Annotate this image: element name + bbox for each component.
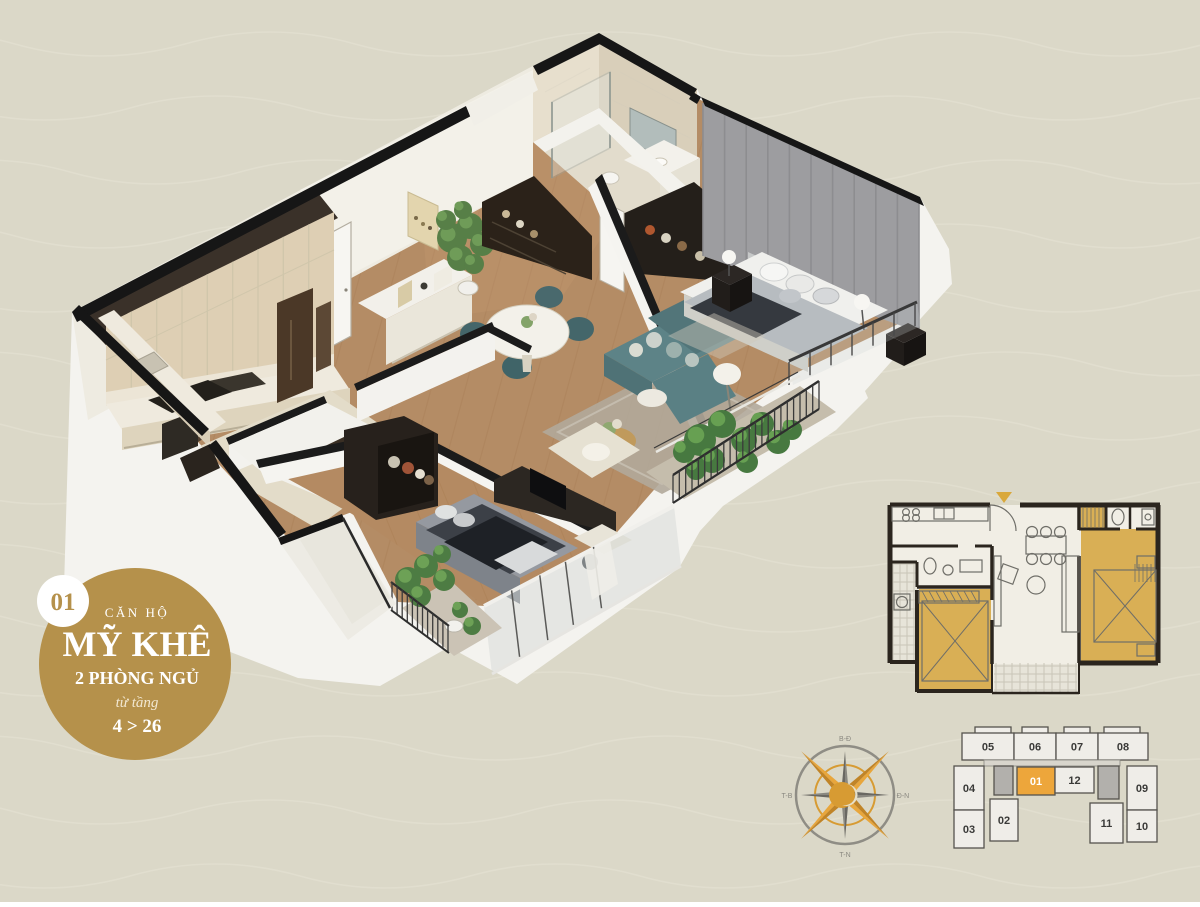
svg-text:10: 10 (1136, 821, 1148, 833)
svg-text:MỸ KHÊ: MỸ KHÊ (63, 624, 212, 664)
svg-text:04: 04 (963, 783, 976, 795)
svg-text:từ tầng: từ tầng (116, 695, 159, 711)
svg-text:08: 08 (1117, 742, 1129, 754)
svg-text:06: 06 (1029, 742, 1041, 754)
svg-text:T-B: T-B (782, 793, 793, 800)
svg-text:02: 02 (998, 815, 1010, 827)
svg-text:11: 11 (1101, 818, 1113, 830)
svg-text:T-N: T-N (839, 852, 850, 859)
svg-text:12: 12 (1068, 775, 1080, 787)
svg-text:01: 01 (1030, 776, 1042, 788)
svg-text:03: 03 (963, 824, 975, 836)
svg-text:05: 05 (982, 742, 994, 754)
svg-text:B-Đ: B-Đ (839, 736, 851, 743)
svg-text:07: 07 (1071, 742, 1083, 754)
svg-text:Đ-N: Đ-N (897, 793, 909, 800)
svg-text:01: 01 (51, 589, 76, 616)
svg-text:4 > 26: 4 > 26 (113, 716, 162, 737)
svg-text:CĂN HỘ: CĂN HỘ (105, 605, 169, 620)
svg-text:09: 09 (1136, 783, 1148, 795)
svg-text:2 PHÒNG NGỦ: 2 PHÒNG NGỦ (75, 667, 199, 688)
